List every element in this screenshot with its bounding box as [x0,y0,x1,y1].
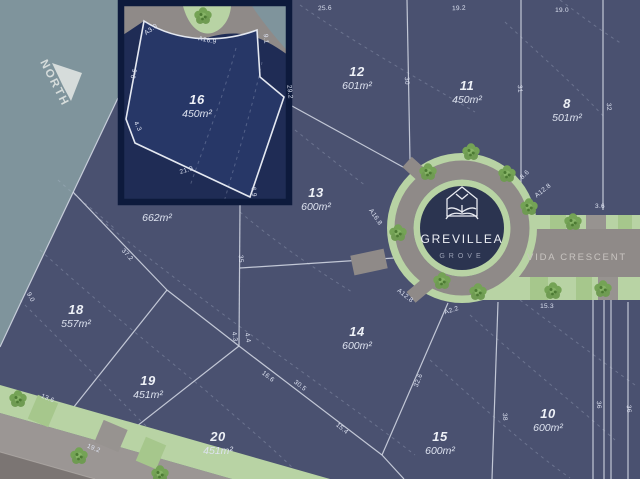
masterplan-svg: GREVILLEA GROVE VIDA CRESCENT NORTH 1645… [0,0,640,479]
svg-text:450m²: 450m² [452,94,482,106]
dimension-label: 36 [625,405,633,413]
svg-text:601m²: 601m² [342,80,372,92]
svg-text:557m²: 557m² [61,318,91,330]
svg-text:450m²: 450m² [182,108,212,120]
svg-text:662m²: 662m² [142,212,172,224]
svg-text:11: 11 [460,78,475,93]
svg-text:13: 13 [308,185,324,200]
dimension-label: 6.9 [250,187,258,197]
logo-title: GREVILLEA [421,232,504,246]
street-name-label: VIDA CRESCENT [527,252,627,263]
svg-text:451m²: 451m² [203,445,233,457]
dimension-label: 19.0 [555,7,569,14]
dimension-label: 38 [501,413,509,421]
dimension-label: 30 [403,77,411,85]
svg-text:8: 8 [563,96,571,111]
svg-text:12: 12 [349,64,365,79]
svg-text:10: 10 [540,406,556,421]
dimension-label: 19.2 [452,5,466,12]
dimension-label: 29.2 [285,85,293,100]
dimension-label: 31 [516,85,524,93]
svg-text:600m²: 600m² [425,445,455,457]
dimension-label: 15.3 [540,303,554,310]
svg-text:16: 16 [189,92,205,107]
svg-text:20: 20 [209,429,226,444]
logo-subtitle: GROVE [439,253,484,260]
svg-text:501m²: 501m² [552,112,582,124]
svg-text:600m²: 600m² [342,340,372,352]
svg-text:600m²: 600m² [533,422,563,434]
dimension-label: 25.6 [318,5,332,12]
svg-text:15: 15 [432,429,448,444]
dimension-label: 36 [595,401,603,409]
svg-text:19: 19 [140,373,156,388]
svg-text:18: 18 [68,302,84,317]
svg-text:451m²: 451m² [133,389,163,401]
dimension-label: 35 [237,255,245,263]
dimension-label: 32 [605,103,613,111]
driveway [586,215,606,229]
svg-text:600m²: 600m² [301,201,331,213]
svg-text:14: 14 [349,324,365,339]
estate-masterplan: GREVILLEA GROVE VIDA CRESCENT NORTH 1645… [0,0,640,479]
dimension-label: 3.6 [595,203,605,210]
lot-label-17-area[interactable]: 662m² [142,212,172,224]
dimension-label: 9.1 [262,34,270,45]
